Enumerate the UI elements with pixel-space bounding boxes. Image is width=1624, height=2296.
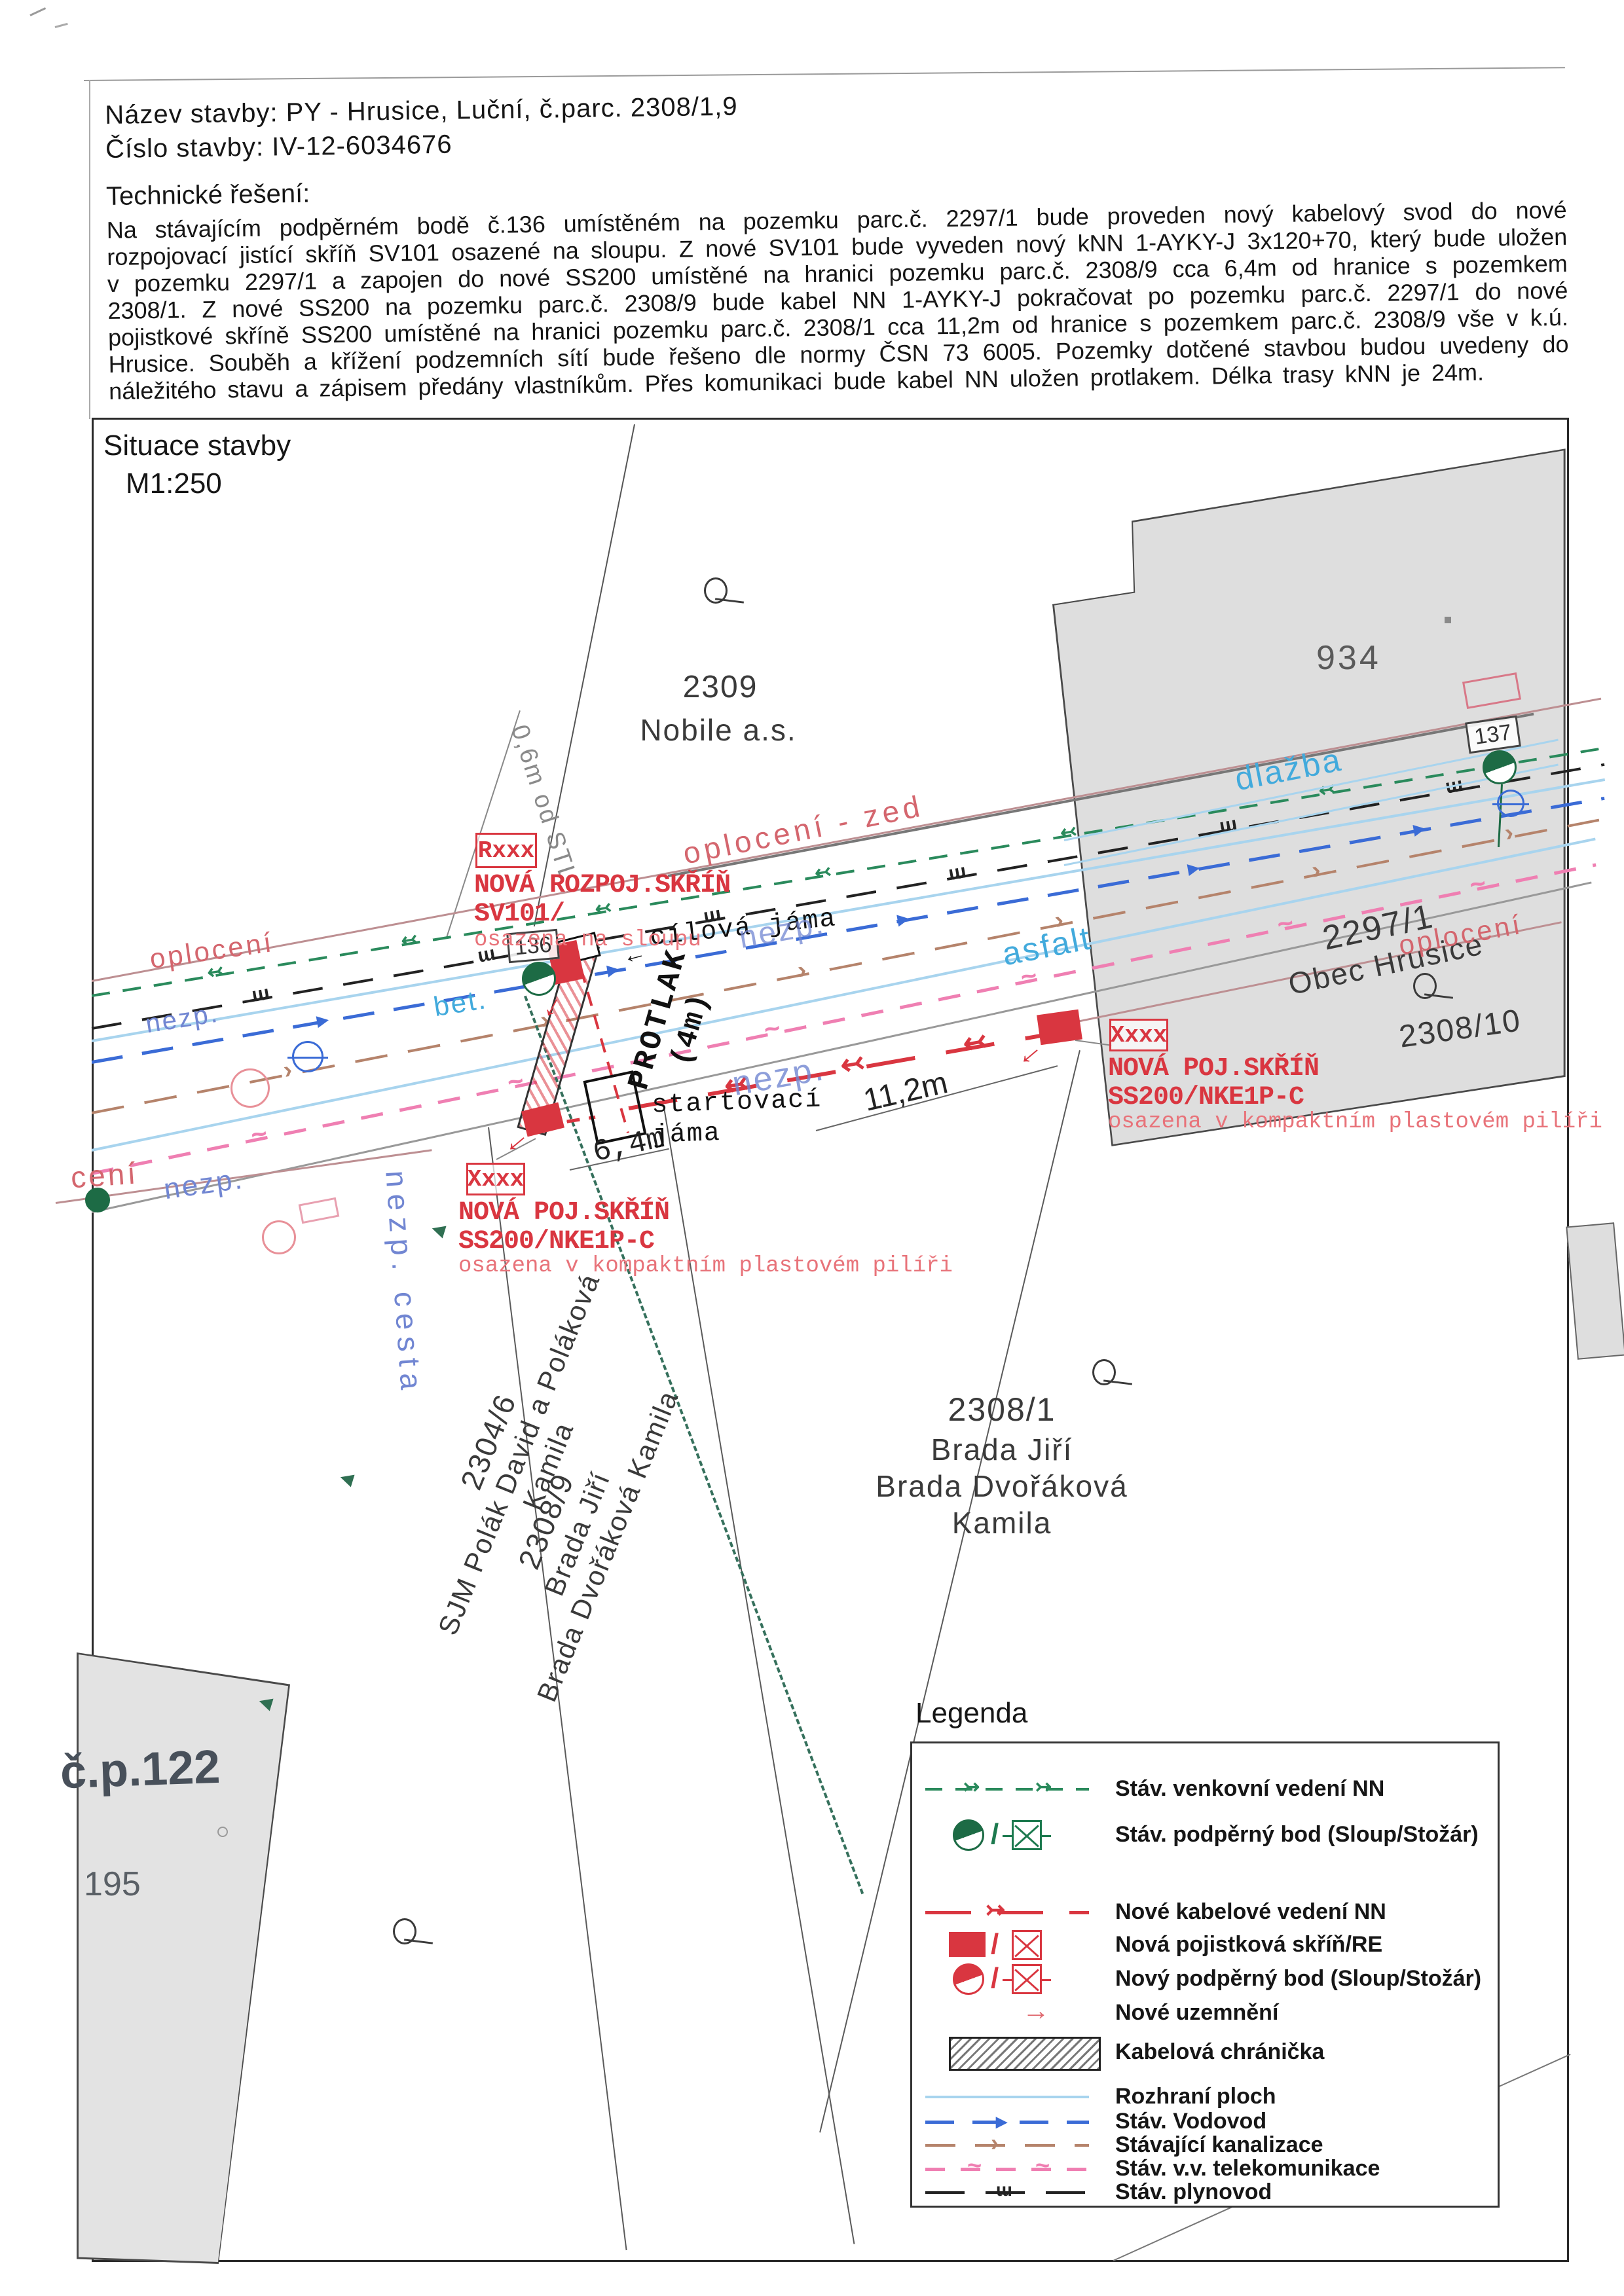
legend-box: ↣ ↣ Stáv. venkovní vedení NN / Stáv. pod… [910,1741,1500,2208]
water-valve-icon [1497,790,1524,817]
pole-icon [953,1819,984,1851]
cyan-line-icon [925,2096,1089,2098]
ss200b-tagbox: Xxxx [1109,1019,1168,1051]
ss200b-tag: Xxxx [1111,1022,1167,1049]
building-right-sliver [1566,1222,1624,1360]
technical-solution-text: Na stávajícím podpěrném bodě č.136 umíst… [107,196,1570,405]
parcel-2308-1-number: 2308/1 [946,1391,1058,1429]
new-pole-icon [953,1963,984,1995]
gas-mark-icon: ɯ [996,2181,1012,2199]
slash-icon: / [991,1818,999,1851]
map-title: Situace stavby [103,429,291,462]
ss200a-tag: Xxxx [468,1166,524,1193]
parcel-ref-icon [393,1918,416,1944]
pole-137-icon [1483,750,1517,784]
building-934-label: 934 [1316,638,1381,678]
casing-hatch-icon [949,2037,1101,2071]
legend-label: Stáv. venkovní vedení NN [1115,1776,1384,1802]
water-arrow-icon: ▶ [996,2115,1007,2129]
ss200b-code: SS200/NKE1P-C [1108,1083,1304,1112]
nn-arrow-icon: ↢ [1318,779,1337,801]
nn-arrow-icon: ↣ [963,1777,980,1797]
water-arrow-icon: ▶ [606,962,619,978]
pole-137-number: 137 [1473,720,1513,750]
building-195-label: 195 [84,1865,141,1904]
water-arrow-icon: ▶ [896,911,910,927]
legend-label: Stáv. plynovod [1115,2179,1272,2205]
cable-arrow-icon: ↣ [986,1898,1005,1922]
sv101-tagbox: Rxxx [475,833,537,868]
building-122-label: č.p.122 [60,1740,221,1799]
slash-icon: / [991,1962,999,1995]
new-tower-crossbox-icon [1012,1964,1042,1994]
water-arrow-icon: ▶ [316,1012,329,1029]
re-crossbox-icon [1012,1930,1042,1960]
legend-label: Stáv. v.v. telekomunikace [1115,2156,1380,2181]
cable-arrow-icon: ↢ [838,1048,867,1081]
telecom-mark-icon: ~ [967,2153,982,2178]
parcel-ref-icon [1413,973,1437,999]
ss200a-tagbox: Xxxx [466,1163,525,1195]
telecom-mark-icon: ~ [1035,2153,1050,2178]
cabinet-icon [949,1932,986,1957]
building-934-dot [1445,617,1451,623]
project-name-value: PY - Hrusice, Luční, č.parc. 2308/1,9 [286,92,737,128]
sv101-name: NOVÁ ROZPOJ.SKŘÍŇ [474,871,730,900]
map-scale: M1:250 [126,467,222,500]
nn-arrow-icon: ↢ [813,862,833,884]
water-fitting-icon [292,1041,323,1072]
scanned-plan-page: Název stavby: PY - Hrusice, Luční, č.par… [0,0,1624,2296]
sv101-code: SV101/ [474,900,564,929]
nn-arrow-icon: ↢ [594,898,614,920]
sv101-tag: Rxxx [478,837,534,864]
legend-label: Nová pojistková skříň/RE [1115,1932,1382,1958]
sewer-manhole-icon [262,1220,296,1254]
scan-edge-line [84,67,1565,81]
water-arrow-icon: ▶ [1187,860,1200,877]
ss200a-note: osazena v kompaktním plastovém pilíři [458,1253,953,1279]
ss200a-name: NOVÁ POJ.SKŘÍŇ [458,1198,669,1228]
tower-crossbox-icon [1012,1820,1042,1850]
project-name-label: Název stavby: [105,98,278,130]
sewer-manhole-icon [231,1068,270,1108]
slash-icon: / [991,1928,999,1961]
legend-label: Nový podpěrný bod (Sloup/Stožár) [1115,1966,1481,1992]
gas-mark-icon: ɯ [250,983,270,1006]
legend-title: Legenda [915,1697,1027,1730]
grounding-arrow-icon: → [1022,1995,1050,2026]
pencil-mark [55,23,68,28]
header-block: Název stavby: PY - Hrusice, Luční, č.par… [105,78,1569,405]
ss200b-note: osazena v kompaktním plastovém pilíři [1108,1109,1602,1135]
project-number-label: Číslo stavby: [105,133,265,164]
gas-mark-icon: ɯ [947,862,967,884]
legend-label: Stávající kanalizace [1115,2132,1323,2158]
legend-label: Rozhraní ploch [1115,2084,1276,2109]
project-number-value: IV-12-6034676 [272,130,452,162]
pencil-mark [29,7,46,16]
parcel-ref-icon [1092,1359,1116,1385]
surface-oploceni-cut: cení [69,1155,139,1195]
scan-edge-left [89,80,90,419]
legend-label: Stáv. Vodovod [1115,2109,1266,2134]
nn-arrow-icon: ↢ [399,930,419,952]
parcel-2308-1-owner: Brada Jiří Brada Dvořáková Kamila [832,1431,1172,1541]
sewer-mark-icon: › [991,2131,999,2155]
ss200b-name: NOVÁ POJ.SKŘÍŇ [1108,1054,1319,1084]
ss200a-code: SS200/NKE1P-C [458,1227,654,1256]
parcel-2309-number: 2309 [681,669,760,705]
pole-136-icon [522,962,556,996]
cable-arrow-icon: ↢ [961,1027,989,1059]
legend-label: Nové kabelové vedení NN [1115,1899,1386,1925]
parcel-2309-owner: Nobile a.s. [630,712,807,748]
legend-label: Nové uzemnění [1115,2000,1278,2026]
legend-label: Stáv. podpěrný bod (Sloup/Stožár) [1115,1822,1479,1848]
parcel-ref-icon [704,577,728,604]
nn-arrow-icon: ↣ [1035,1777,1052,1797]
legend-label: Kabelová chránička [1115,2039,1324,2065]
scan-speck [217,1827,228,1837]
sv101-note: osazena na sloupu [474,927,701,953]
water-arrow-icon: ▶ [1412,821,1426,837]
